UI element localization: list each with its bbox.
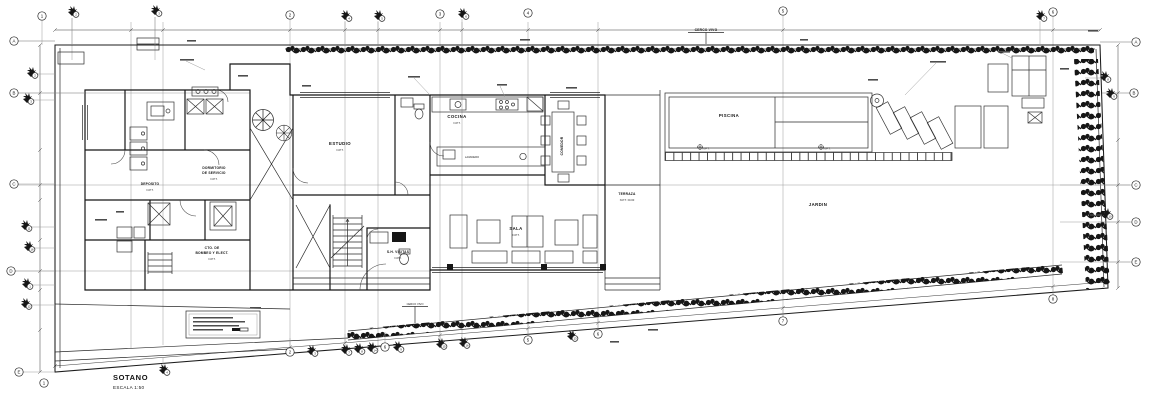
grid-bubble: 1 [40, 379, 48, 387]
lounger [893, 107, 919, 140]
svg-text:13: 13 [573, 337, 577, 341]
plan-scale: ESCALA 1:50 [113, 385, 145, 390]
sh-visitas-npt: N.P.T. [395, 256, 402, 260]
furniture [117, 87, 606, 270]
sh-visitas-label: S.H. VISITAS [387, 250, 410, 254]
plant-marker: 16 [24, 241, 35, 252]
stairs [148, 215, 364, 274]
grid-bubble: E [1132, 258, 1140, 266]
plant-marker: 14 [367, 342, 378, 353]
grid-bubble: 5 [524, 336, 532, 344]
svg-text:10: 10 [1108, 215, 1112, 219]
deposito-label: DEPOSITO [141, 182, 160, 186]
grid-bubble: 3 [436, 10, 444, 18]
svg-text:D: D [1134, 220, 1137, 225]
grid-bubble: D [7, 267, 15, 275]
grid-bubble: 2 [286, 348, 294, 356]
svg-text:E: E [18, 370, 21, 375]
plant-marker: 2 [68, 6, 79, 17]
svg-text:11: 11 [27, 227, 30, 231]
svg-text:A: A [13, 39, 16, 44]
plant-marker: 4 [159, 364, 170, 375]
estudio-label: ESTUDIO [329, 141, 351, 146]
illegible-annotations [95, 30, 1098, 343]
svg-text:C: C [12, 182, 15, 187]
grid-markers-top: 1 2 3 2 4 5 3 6 4 5 7 6 [38, 5, 1057, 21]
grid-bubble: 4 [524, 9, 532, 17]
svg-text:12: 12 [27, 305, 31, 309]
top-hedge [286, 43, 1094, 55]
svg-text:16: 16 [30, 248, 34, 252]
plant-marker: 9 [1106, 88, 1117, 99]
plant-marker: 7 [1036, 10, 1047, 21]
svg-text:B: B [1133, 91, 1136, 96]
pool-area [665, 56, 1046, 161]
grid-bubble: 2 [286, 11, 294, 19]
grid-bubble: 8 [1049, 295, 1057, 303]
grid-bubble: D [1132, 218, 1140, 226]
jardin-label: JARDIN [809, 202, 827, 207]
property-boundary [55, 45, 1108, 372]
svg-text:A: A [1135, 40, 1138, 45]
svg-text:14: 14 [373, 349, 377, 353]
grid-bubble: 6 [381, 343, 389, 351]
sala-npt: N.P.T. [513, 233, 520, 237]
plant-marker: 3 [151, 5, 162, 16]
grid-bubble: B [10, 89, 18, 97]
top-hedge-label: CERCO VIVO [695, 28, 718, 32]
title-block: SOTANO ESCALA 1:50 [113, 373, 148, 390]
plant-marker: 11 [21, 220, 32, 231]
svg-text:16: 16 [465, 344, 469, 348]
plant-marker: 4 [341, 10, 352, 21]
comedor-label: COMEDOR [560, 136, 564, 155]
cocina-npt: N.P.T. [454, 121, 461, 125]
plant-marker: 3 [307, 345, 318, 356]
plant-marker: 12 [21, 298, 32, 309]
plan-title: SOTANO [113, 373, 148, 382]
plant-marker: 9 [393, 341, 404, 352]
plant-marker: 5 [374, 10, 385, 21]
svg-text:E: E [1135, 260, 1138, 265]
grid-bubble: B [1130, 89, 1138, 97]
bottom-hedge [347, 264, 1063, 340]
lounger [927, 117, 953, 150]
tree-icon [253, 110, 274, 131]
svg-text:C: C [1134, 183, 1137, 188]
floor-plan-drawing: PISCINA N.P.T. N.P.T. ESTUDIO N.P.T. COC… [0, 0, 1150, 403]
plant-marker: 2 [27, 67, 38, 78]
pool [665, 93, 872, 152]
grid-lines [15, 14, 1131, 351]
grid-bubble: 1 [38, 12, 46, 20]
dormitorio-npt: N.P.T. [211, 177, 218, 181]
hedge-bands [286, 43, 1110, 340]
terraza-label: TERRAZA [618, 192, 636, 196]
bombas-label: CTO. DE [205, 246, 220, 250]
floor-plan-sheet: PISCINA N.P.T. N.P.T. ESTUDIO N.P.T. COC… [0, 0, 1150, 403]
grid-bubble: A [10, 37, 18, 45]
bombas-npt: N.P.T. [209, 257, 216, 261]
plant-marker: 1 [22, 278, 33, 289]
terraza-npt: N.P.T. ±0.00 [620, 198, 635, 202]
dormitorio-label: DORMITORIO [202, 166, 226, 170]
svg-text:15: 15 [442, 345, 446, 349]
grid-bubble: C [1132, 181, 1140, 189]
bombas-label2: BOMBEO Y ELECT. [195, 251, 228, 255]
plant-marker: 13 [567, 330, 578, 341]
grid-bubble: 5 [779, 7, 787, 15]
grid-bubble: 6 [594, 330, 602, 338]
grid-bubble: C [10, 180, 18, 188]
grid-bubble: 7 [779, 317, 787, 325]
dormitorio-label2: DE SERVICIO [202, 171, 226, 175]
room-labels: PISCINA N.P.T. N.P.T. ESTUDIO N.P.T. COC… [141, 113, 831, 261]
piscina-npt: N.P.T. [703, 147, 710, 151]
piscina-label: PISCINA [719, 113, 739, 118]
lavadero-label: LAVADERO [465, 155, 479, 159]
tree-icon [276, 125, 292, 141]
grid-markers-left: A 2 3 B C 11 16 D 1 12 E 1 [7, 37, 48, 387]
plant-marker: 15 [436, 338, 447, 349]
plant-marker: 8 [354, 343, 365, 354]
bottom-hedge-label: CERCO VIVO [407, 302, 424, 306]
svg-text:B: B [13, 91, 16, 96]
piscina-npt: N.P.T. [824, 147, 831, 151]
deposito-npt: N.P.T. [147, 188, 154, 192]
svg-text:D: D [9, 269, 12, 274]
grid-bubble: A [1132, 38, 1140, 46]
grid-bubble: 6 [1049, 8, 1057, 16]
plant-marker: 6 [458, 8, 469, 19]
legend-box [186, 311, 260, 338]
grid-bubble: E [15, 368, 23, 376]
plant-marker: 3 [23, 93, 34, 104]
plant-marker: 7 [341, 344, 352, 355]
lounger [910, 112, 936, 145]
cocina-label: COCINA [447, 114, 466, 119]
sala-label: SALA [509, 226, 522, 231]
estudio-npt: N.P.T. [337, 148, 344, 152]
